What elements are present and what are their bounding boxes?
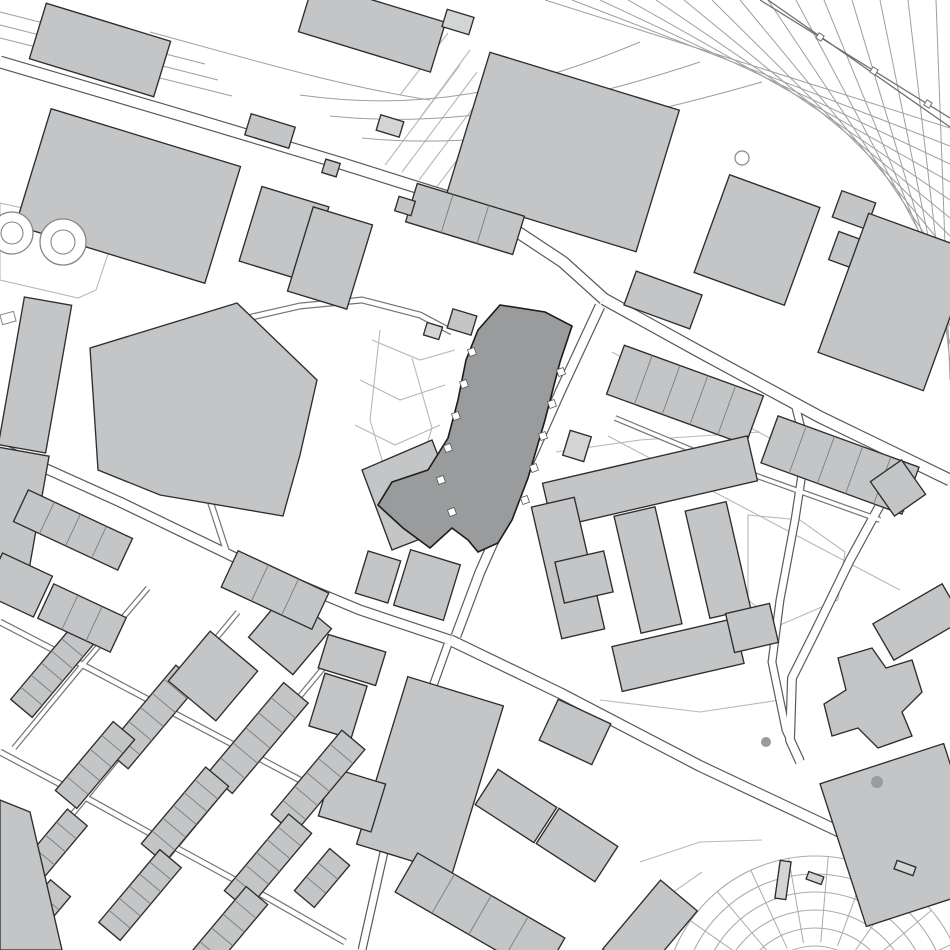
- site-plan-map: [0, 0, 950, 950]
- storage-tank-ring: [40, 219, 86, 265]
- map-point-marker: [735, 151, 749, 165]
- site-plan-map-viewport: [0, 0, 950, 950]
- building-footprint: [824, 648, 922, 748]
- map-point-marker: [761, 737, 771, 747]
- map-point-marker: [871, 776, 883, 788]
